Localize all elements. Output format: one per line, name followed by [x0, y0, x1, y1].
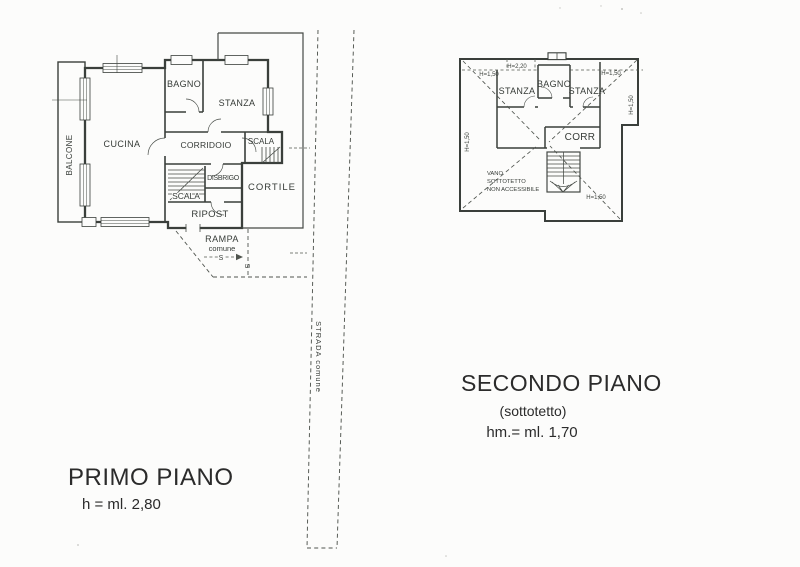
label-rampa: RAMPA — [205, 234, 239, 244]
rampa-flow-arrow — [236, 254, 243, 260]
dim-h220: H=2,20 — [507, 64, 527, 70]
floor2-plan: STANZA BAGNO STANZA CORR VANO SOTTOTETTO… — [460, 53, 643, 221]
window — [80, 78, 90, 120]
window — [101, 218, 149, 227]
floor2-title: SECONDO PIANO — [461, 370, 662, 396]
floor2-subtitle: (sottotetto) — [500, 403, 567, 419]
sheet-titles: PRIMO PIANO h = ml. 2,80 SECONDO PIANO (… — [68, 370, 662, 513]
room-label-bagno: BAGNO — [537, 79, 571, 89]
boundary-ticks — [289, 148, 310, 253]
floor1-title: PRIMO PIANO — [68, 464, 234, 491]
floorplan-drawing: BALCONE CUCINA BAGNO STANZA CORRIDOIO SC… — [0, 0, 800, 567]
room-label-balcone: BALCONE — [65, 134, 74, 175]
strada-dashed-lines — [307, 30, 354, 548]
room-label-stanza-dx: STANZA — [569, 86, 606, 96]
label-rampa-comune: comune — [209, 244, 236, 253]
room-label-stanza-sx: STANZA — [499, 86, 536, 96]
window — [80, 164, 90, 206]
label-s-marker: S — [219, 255, 224, 262]
dim-h150-left: H=1,50 — [465, 132, 471, 152]
window — [263, 88, 273, 115]
label-strada-comune: STRADA comune — [314, 321, 323, 393]
room-label-bagno: BAGNO — [167, 79, 201, 89]
room-label-scala-interna: SCALA — [172, 191, 200, 201]
room-label-corridoio: CORRIDOIO — [181, 140, 232, 150]
floor1-height-note: h = ml. 2,80 — [82, 496, 161, 513]
room-label-stanza: STANZA — [219, 98, 256, 108]
window — [82, 218, 96, 227]
label-vano-line2: SOTTOTETTO — [487, 179, 526, 185]
room-label-ripost: RIPOST — [191, 209, 228, 220]
dim-h150-top-right: H=1,50 — [601, 71, 621, 77]
room-label-disbrigo: DISBRIGO — [207, 175, 240, 182]
rampa-door-gap — [187, 224, 200, 232]
scanned-floorplan-sheet: BALCONE CUCINA BAGNO STANZA CORRIDOIO SC… — [0, 0, 800, 567]
external-stair-treads — [262, 147, 280, 163]
dim-h150-top-left: H=1,50 — [479, 72, 499, 78]
label-vano-line3: NON ACCESSIBILE — [487, 187, 539, 193]
window — [225, 56, 248, 65]
label-vano-line1: VANO — [487, 171, 503, 177]
room-label-scala-esterna: SCALA — [248, 137, 275, 146]
window — [171, 56, 192, 65]
room-label-cucina: CUCINA — [104, 139, 141, 149]
room-label-corr: CORR — [565, 132, 596, 143]
dim-h150-bottom: H=1,50 — [586, 195, 606, 201]
rampa-dashed-boundary — [176, 229, 307, 277]
dim-h150-right: H=1,50 — [629, 95, 635, 115]
window — [103, 64, 142, 73]
label-s-marker-rotated: S — [243, 264, 250, 269]
room-label-cortile: CORTILE — [248, 182, 296, 193]
floor2-height-note: hm.= ml. 1,70 — [486, 424, 577, 441]
